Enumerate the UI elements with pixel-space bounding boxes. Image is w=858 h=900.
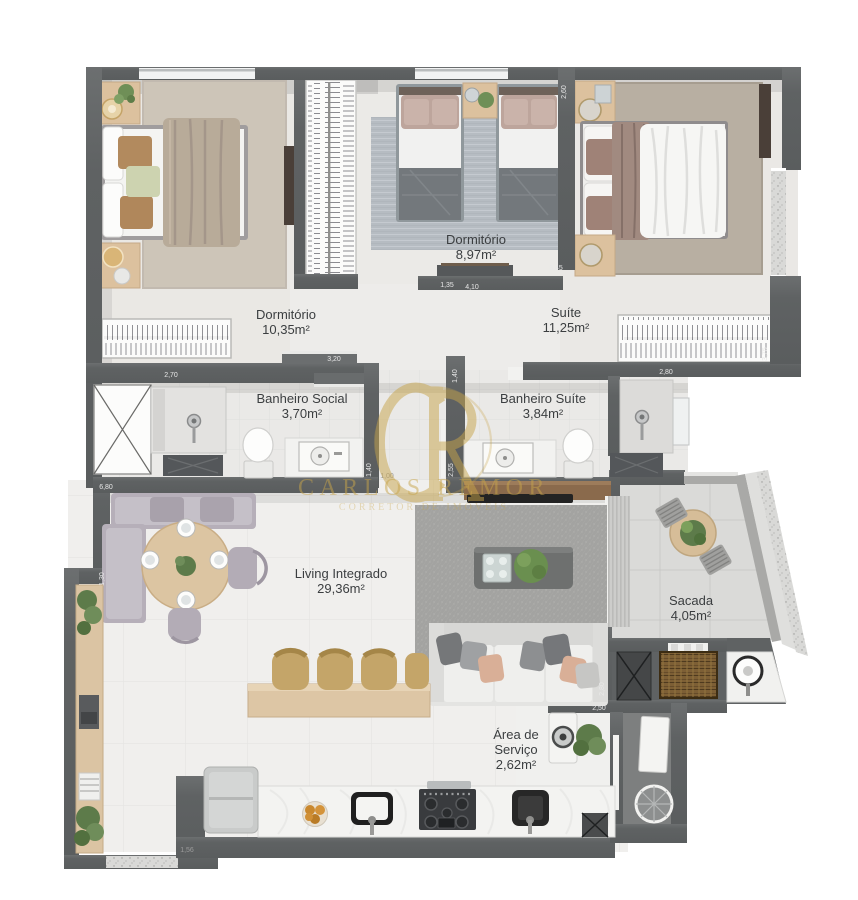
svg-text:6,80: 6,80 [99,484,113,491]
svg-text:2,50: 2,50 [592,705,606,712]
svg-text:CORRETOR DE IMÓVEIS: CORRETOR DE IMÓVEIS [339,501,509,513]
svg-text:Living Integrado: Living Integrado [295,566,388,581]
svg-text:2,62m²: 2,62m² [496,757,537,772]
svg-text:Banheiro Social: Banheiro Social [256,391,347,406]
svg-text:Sacada: Sacada [669,593,714,608]
svg-text:1,35: 1,35 [440,282,454,289]
svg-text:Dormitório: Dormitório [256,307,316,322]
svg-text:3,20: 3,20 [327,356,341,363]
svg-text:4,05m²: 4,05m² [671,608,712,623]
svg-text:1,30: 1,30 [99,572,106,586]
svg-text:Área de: Área de [493,727,539,742]
svg-text:Dormitório: Dormitório [446,232,506,247]
svg-text:2,60: 2,60 [561,85,568,99]
svg-text:2,70: 2,70 [164,372,178,379]
svg-text:Suíte: Suíte [551,305,581,320]
svg-text:CARLOS REMOR: CARLOS REMOR [298,475,550,501]
svg-text:Banheiro Suíte: Banheiro Suíte [500,391,586,406]
svg-text:11,25m²: 11,25m² [543,320,590,335]
svg-text:3,84m²: 3,84m² [523,406,564,421]
svg-text:1,40: 1,40 [452,369,459,383]
svg-text:8,97m²: 8,97m² [456,247,497,262]
svg-text:3,70m²: 3,70m² [282,406,323,421]
svg-text:10,35m²: 10,35m² [262,322,310,337]
svg-text:1,56: 1,56 [180,847,194,854]
svg-text:Serviço: Serviço [494,742,537,757]
svg-text:29,36m²: 29,36m² [317,581,365,596]
svg-text:2,80: 2,80 [599,682,606,696]
svg-text:4,10: 4,10 [465,284,479,291]
svg-text:3,75: 3,75 [762,347,769,361]
svg-text:3,45: 3,45 [549,265,563,272]
svg-text:2,80: 2,80 [659,369,673,376]
